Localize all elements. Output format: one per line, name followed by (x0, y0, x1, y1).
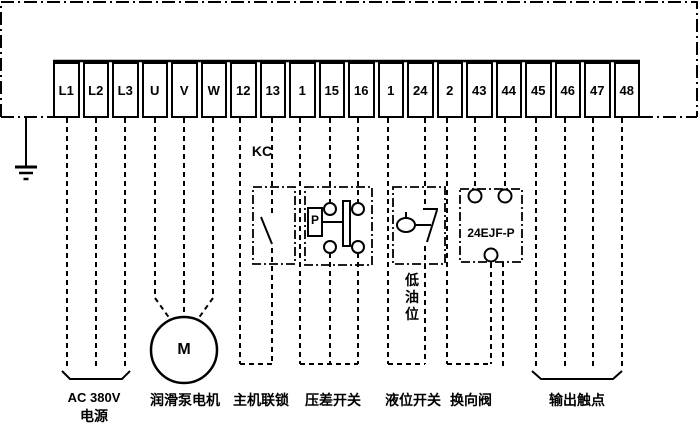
pressure-sensor-label: P (308, 212, 322, 228)
terminal-1b: 1 (378, 62, 405, 118)
kc-contact-blade (261, 217, 272, 244)
pressure-terminal (324, 203, 336, 215)
terminal-w: W (201, 62, 228, 118)
terminal-strip: L1 L2 L3 U V W 12 13 1 15 16 1 24 2 43 4… (53, 62, 640, 118)
pressure-terminal (324, 241, 336, 253)
valve-model-label: 24EJF-P (460, 225, 522, 241)
terminal-48: 48 (614, 62, 641, 118)
low-oil-level-label: 低油位 (404, 272, 420, 323)
terminal-44: 44 (496, 62, 523, 118)
terminal-2: 2 (437, 62, 464, 118)
output-caption: 输出触点 (546, 392, 608, 408)
power-caption-line1: AC 380V (54, 390, 134, 406)
terminal-15: 15 (319, 62, 346, 118)
terminal-u: U (142, 62, 169, 118)
terminal-l3: L3 (112, 62, 139, 118)
valve-caption: 换向阀 (447, 392, 495, 408)
terminal-13: 13 (260, 62, 287, 118)
pressure-terminal (352, 241, 364, 253)
kc-contact-box (253, 187, 295, 264)
valve-terminal (469, 190, 482, 203)
terminal-l1: L1 (53, 62, 80, 118)
valve-terminal (499, 190, 512, 203)
power-bracket (62, 371, 130, 379)
level-caption: 液位开关 (382, 392, 444, 408)
wiring-diagram: L1 L2 L3 U V W 12 13 1 15 16 1 24 2 43 4… (0, 0, 700, 426)
terminal-24: 24 (407, 62, 434, 118)
terminal-1a: 1 (289, 62, 316, 118)
wire-u (155, 118, 170, 319)
terminal-47: 47 (584, 62, 611, 118)
level-switch-symbol (397, 209, 438, 242)
pressure-terminal (352, 203, 364, 215)
terminal-v: V (171, 62, 198, 118)
motor-caption: 润滑泵电机 (145, 392, 225, 408)
pressure-caption: 压差开关 (302, 392, 364, 408)
output-bracket (532, 371, 622, 379)
ground-symbol (15, 117, 37, 179)
motor-letter: M (168, 342, 200, 358)
terminal-46: 46 (555, 62, 582, 118)
wire-w (198, 118, 213, 319)
terminal-16: 16 (348, 62, 375, 118)
kc-label: KC (248, 143, 276, 159)
pressure-diaphragm-bar (343, 201, 350, 246)
terminal-45: 45 (525, 62, 552, 118)
terminal-43: 43 (466, 62, 493, 118)
terminal-l2: L2 (83, 62, 110, 118)
interlock-caption: 主机联锁 (230, 392, 292, 408)
valve-terminal (485, 249, 498, 262)
float-ball (397, 218, 415, 232)
power-caption-line2: 电源 (54, 408, 134, 424)
terminal-12: 12 (230, 62, 257, 118)
